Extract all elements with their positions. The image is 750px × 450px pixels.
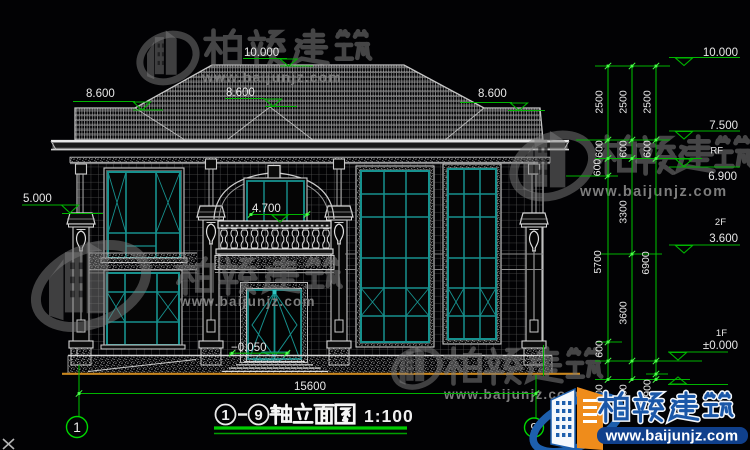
svg-text:www.baijunjz.com: www.baijunjz.com — [179, 294, 316, 309]
svg-text:5700: 5700 — [592, 250, 604, 274]
svg-text:6900: 6900 — [640, 251, 652, 275]
svg-text:3300: 3300 — [618, 200, 630, 224]
svg-text:±0.000: ±0.000 — [703, 340, 738, 352]
svg-text:8.600: 8.600 — [86, 88, 115, 100]
svg-text:1: 1 — [221, 407, 229, 424]
svg-text:600: 600 — [594, 140, 606, 158]
svg-text:8.600: 8.600 — [478, 88, 507, 100]
svg-text:www.baijunjz.com: www.baijunjz.com — [605, 428, 739, 445]
svg-text:5.000: 5.000 — [23, 193, 52, 205]
svg-text:600: 600 — [618, 140, 630, 158]
svg-text:2500: 2500 — [618, 90, 630, 114]
svg-text:600: 600 — [642, 140, 654, 158]
svg-text:8.600: 8.600 — [226, 87, 255, 99]
svg-text:4.700: 4.700 — [252, 203, 281, 215]
svg-text:600: 600 — [592, 159, 604, 177]
svg-text:www.baijunjz.com: www.baijunjz.com — [201, 69, 342, 85]
svg-text:2500: 2500 — [642, 90, 654, 114]
svg-text:3.600: 3.600 — [709, 233, 738, 245]
svg-text:2500: 2500 — [594, 90, 606, 114]
svg-text:2F: 2F — [715, 217, 726, 228]
svg-text:7.500: 7.500 — [709, 120, 738, 132]
svg-text:1F: 1F — [716, 328, 727, 339]
svg-text:9: 9 — [254, 407, 262, 424]
svg-text:−0.050: −0.050 — [231, 342, 267, 354]
svg-text:6.900: 6.900 — [708, 171, 737, 183]
svg-text:600: 600 — [594, 340, 606, 358]
svg-text:10.000: 10.000 — [244, 47, 279, 59]
svg-text:3600: 3600 — [618, 301, 630, 325]
svg-text:1: 1 — [73, 419, 81, 435]
svg-text:1:100: 1:100 — [364, 406, 414, 426]
svg-text:www.baijunjz.com: www.baijunjz.com — [579, 184, 728, 200]
svg-text:RF: RF — [710, 146, 723, 157]
svg-text:15600: 15600 — [294, 381, 326, 393]
